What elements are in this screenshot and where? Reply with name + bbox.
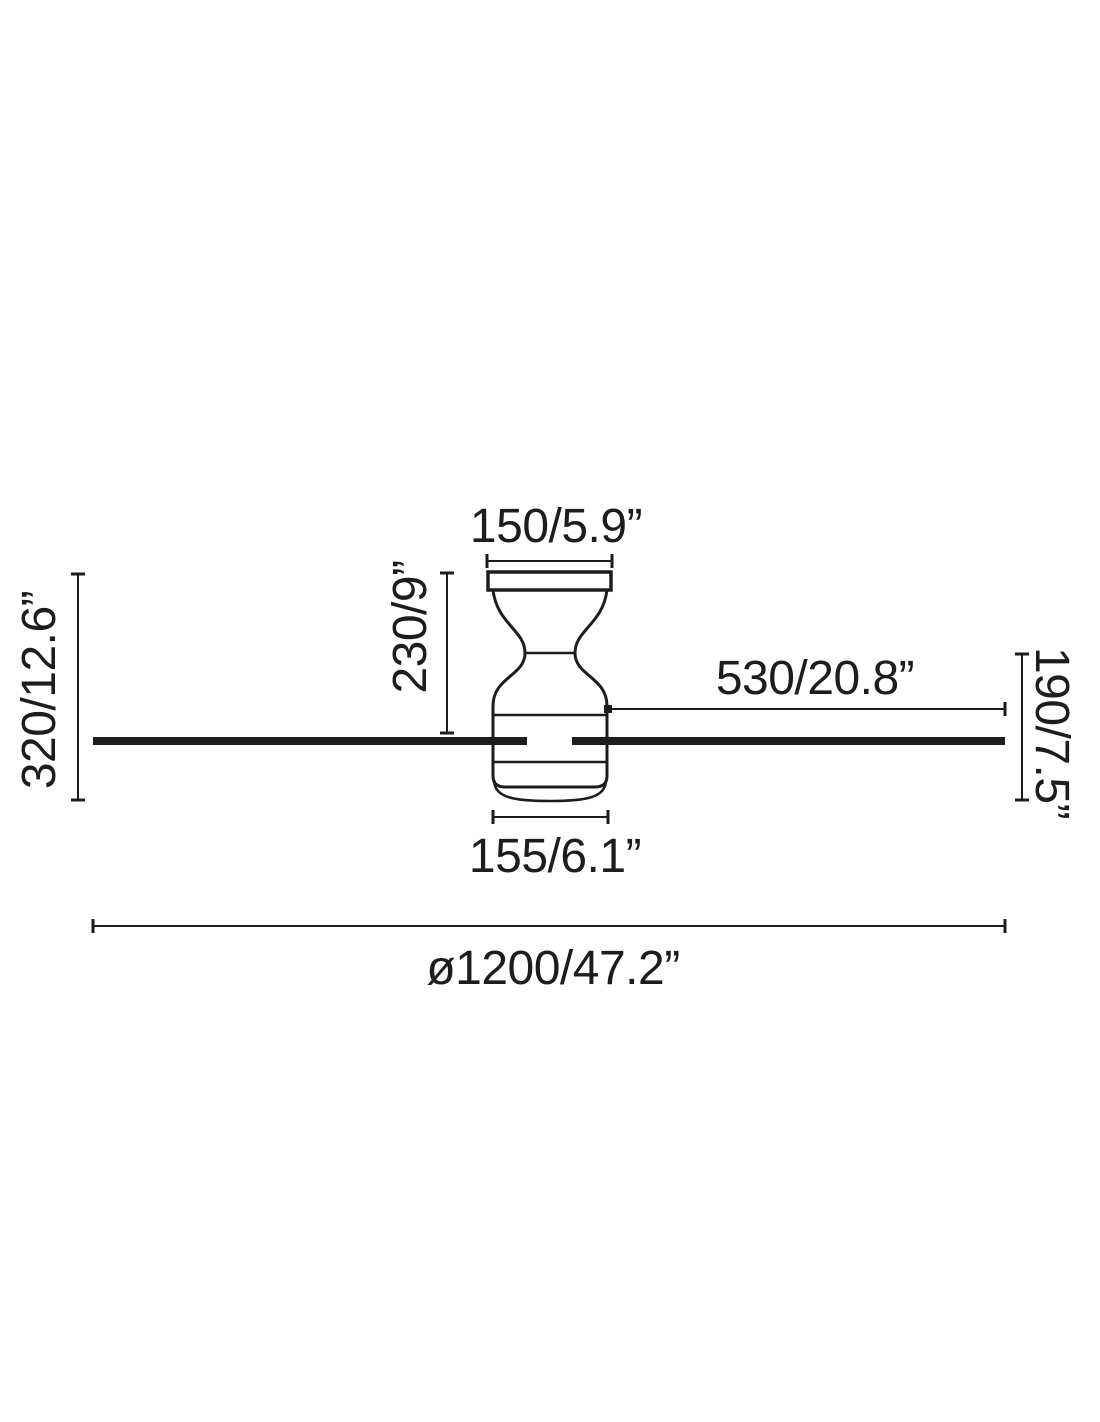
fan-blade-left xyxy=(93,737,527,745)
dim-sweep-diameter xyxy=(93,919,1005,933)
dim-drop-to-blades xyxy=(440,573,454,733)
fan-canopy xyxy=(488,572,611,590)
label-canopy-width: 150/5.9” xyxy=(470,500,642,553)
label-housing-height: 190/7.5” xyxy=(1025,647,1078,819)
fan-dimension-diagram: 150/5.9” 230/9” 320/12.6” 530/20.8” 190/… xyxy=(0,0,1100,1422)
label-drop-to-blades: 230/9” xyxy=(384,560,437,693)
dim-blade-length-anchor xyxy=(604,705,612,713)
diagram-canvas: 150/5.9” 230/9” 320/12.6” 530/20.8” 190/… xyxy=(0,0,1100,1422)
fan-body-outline xyxy=(493,590,607,787)
dim-ceiling-to-bottom xyxy=(71,574,85,800)
label-ceiling-to-bottom: 320/12.6” xyxy=(13,591,66,789)
fan-blade-right xyxy=(572,737,1005,745)
label-blade-length: 530/20.8” xyxy=(716,652,914,705)
label-sweep-diameter: ø1200/47.2” xyxy=(426,942,679,995)
label-housing-width: 155/6.1” xyxy=(469,830,641,883)
dim-canopy-width xyxy=(487,554,612,568)
dim-housing-width xyxy=(493,810,608,824)
